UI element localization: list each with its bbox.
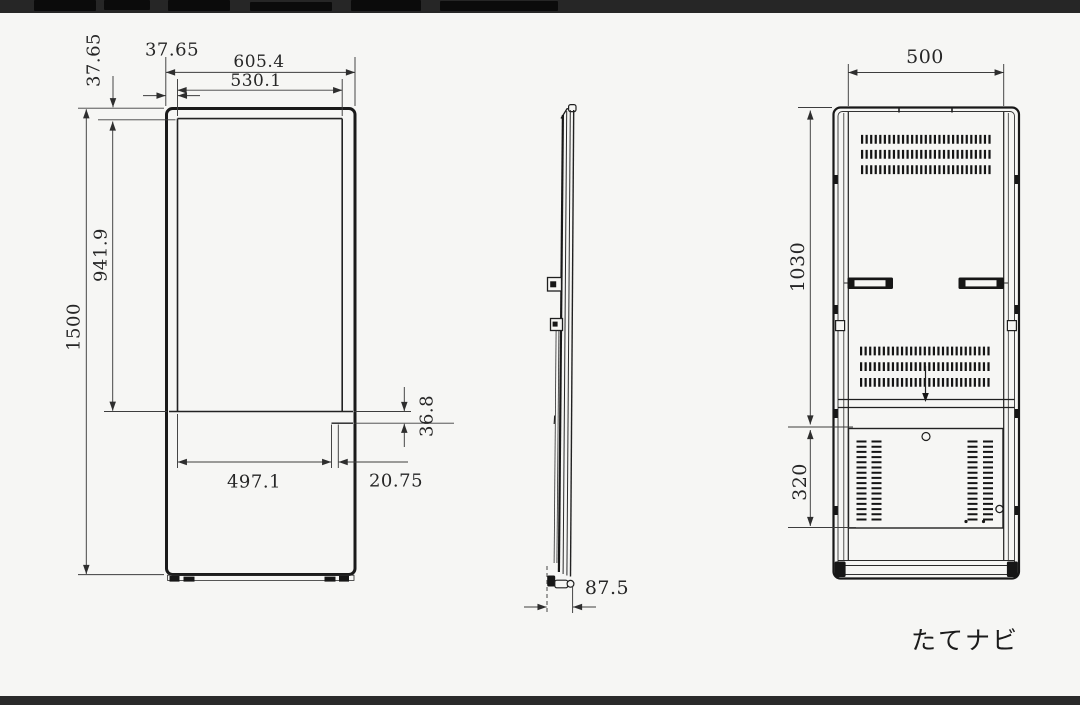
dim-front-lower-offset: 20.75	[369, 471, 423, 492]
dim-front-total-height: 1500	[64, 303, 85, 351]
panel-latch	[996, 505, 1003, 512]
rear-handle-right	[959, 278, 1009, 290]
rear-handle-left	[844, 278, 893, 290]
rear-access-panel	[849, 429, 1004, 529]
down-arrow-pointer	[922, 366, 929, 402]
dim-front-side-bezel: 37.65	[145, 40, 199, 61]
dim-front-lower-strip: 36.8	[417, 395, 438, 437]
drawing-canvas	[0, 13, 1080, 705]
technical-drawing: 605.4 530.1 37.65 37.65 1500 941.9 36.8 …	[0, 13, 1080, 696]
front-view	[167, 109, 356, 582]
dim-side-depth: 87.5	[585, 577, 629, 599]
front-view-dimensions	[78, 57, 454, 575]
cropped-header-text	[440, 1, 558, 11]
rear-upper-vent-grid	[861, 139, 991, 169]
cropped-header-text	[168, 0, 230, 11]
drawing-caption: たてナビ	[911, 621, 1019, 657]
dim-front-top-bezel: 37.65	[84, 33, 105, 87]
dim-rear-lower-height: 320	[789, 463, 811, 501]
dim-front-lower-width: 497.1	[227, 472, 281, 493]
cropped-header-text	[250, 2, 332, 11]
rear-view	[834, 108, 1020, 579]
side-view	[547, 105, 576, 588]
dim-rear-width: 500	[906, 46, 944, 68]
cropped-footer-bar	[0, 696, 1080, 705]
cropped-header-text	[104, 0, 150, 10]
cropped-header-bar	[0, 0, 1080, 13]
dim-front-screen-height: 941.9	[91, 228, 112, 282]
dim-front-screen-width: 530.1	[230, 71, 281, 91]
cropped-header-text	[351, 0, 421, 11]
rear-channel-ticks	[834, 175, 1019, 515]
dim-front-outer-width: 605.4	[233, 52, 284, 72]
dim-rear-upper-height: 1030	[787, 242, 809, 292]
cropped-header-text	[34, 0, 96, 11]
side-base-foot	[547, 576, 555, 587]
